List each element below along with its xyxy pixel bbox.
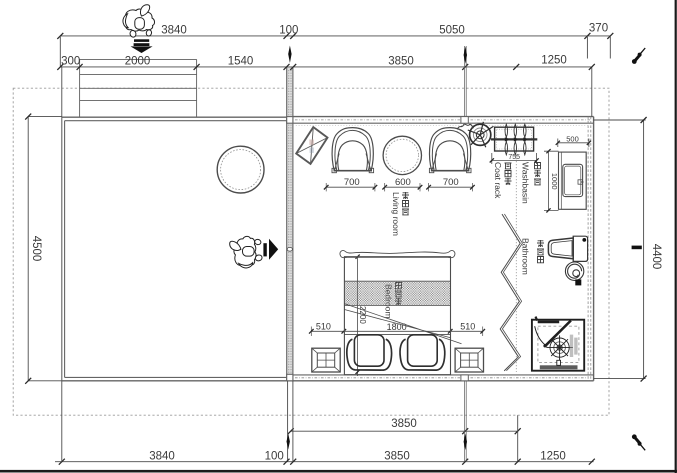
svg-text:100: 100 [279, 25, 298, 37]
svg-text:300: 300 [61, 56, 80, 68]
svg-text:3840: 3840 [161, 25, 187, 37]
svg-text:600: 600 [395, 177, 411, 188]
svg-text:100: 100 [265, 450, 284, 462]
svg-text:Living room: Living room [391, 192, 401, 236]
svg-text:5050: 5050 [439, 25, 465, 37]
svg-text:3850: 3850 [384, 450, 410, 462]
svg-text:2000: 2000 [125, 56, 151, 68]
svg-text:510: 510 [316, 322, 331, 332]
svg-text:1250: 1250 [540, 450, 566, 462]
svg-text:3850: 3850 [391, 418, 417, 430]
svg-text:700: 700 [344, 177, 360, 188]
svg-text:700: 700 [443, 177, 459, 188]
svg-text:3840: 3840 [149, 450, 175, 462]
svg-text:500: 500 [566, 134, 579, 143]
svg-text:1000: 1000 [550, 173, 559, 190]
svg-text:370: 370 [589, 22, 608, 34]
svg-text:3850: 3850 [388, 56, 414, 68]
svg-text:Coat rack: Coat rack [493, 162, 503, 199]
svg-text:1250: 1250 [541, 54, 567, 66]
svg-text:1540: 1540 [228, 56, 254, 68]
svg-text:510: 510 [460, 322, 475, 332]
svg-text:Washbasin: Washbasin [521, 162, 531, 204]
svg-text:4500: 4500 [30, 236, 42, 262]
svg-text:755: 755 [508, 154, 520, 161]
svg-text:4400: 4400 [650, 244, 662, 270]
